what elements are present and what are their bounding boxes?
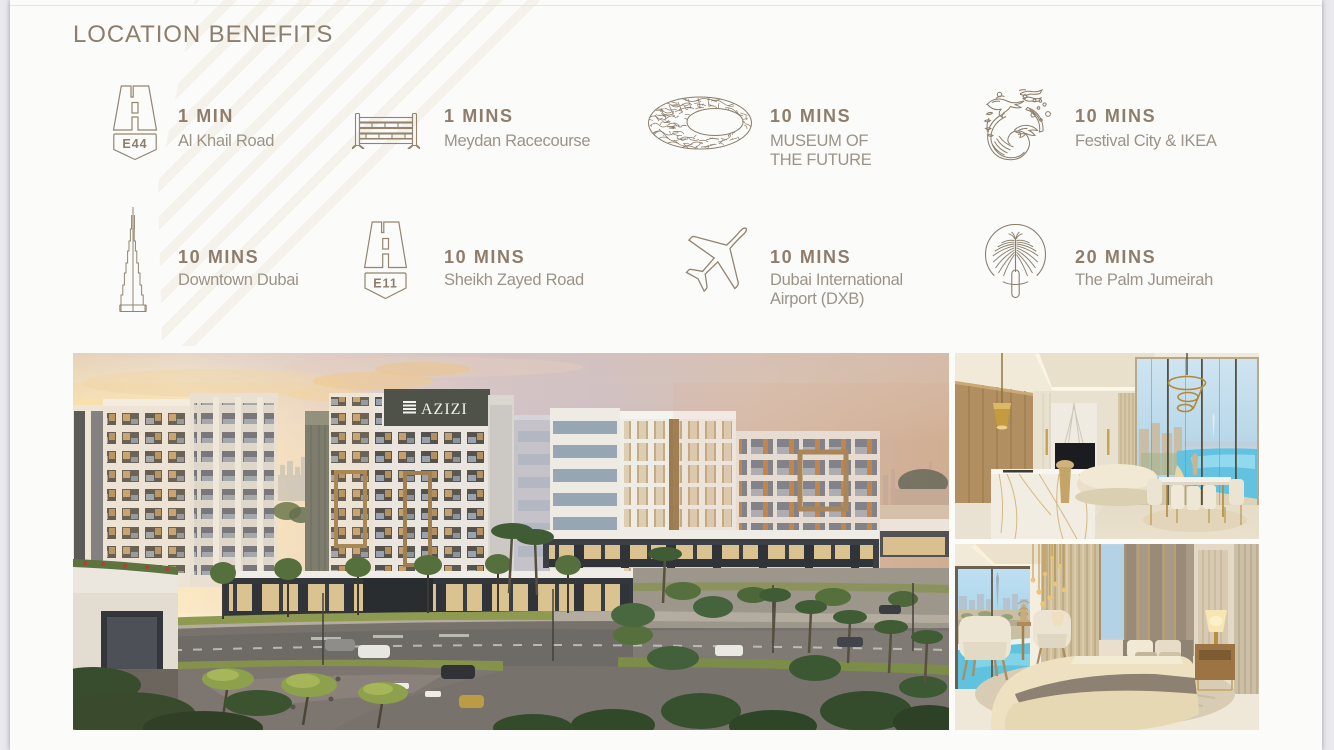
- svg-text:E11: E11: [373, 277, 398, 291]
- svg-text:E44: E44: [122, 137, 147, 151]
- svg-text:AZIZI: AZIZI: [421, 401, 468, 418]
